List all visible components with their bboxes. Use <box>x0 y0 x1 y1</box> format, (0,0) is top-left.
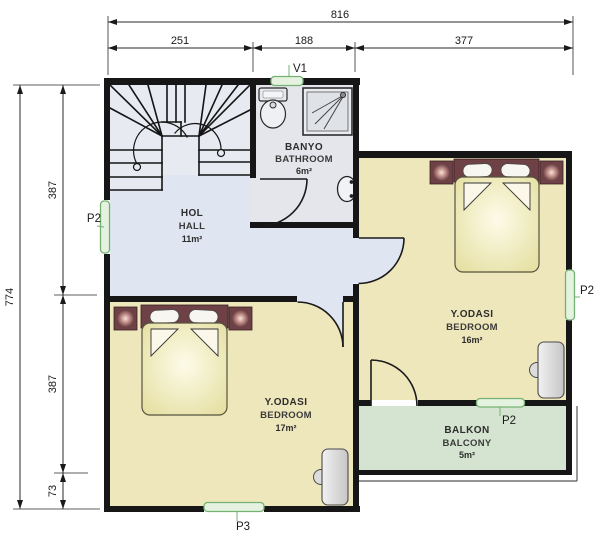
room-bedroom-right-name: Y.ODASI <box>451 309 494 320</box>
room-balcony-name-en: BALCONY <box>442 438 491 449</box>
dim-left-seg3: 73 <box>47 485 59 497</box>
pillow <box>189 309 219 323</box>
room-hall-name: HOL <box>181 208 203 219</box>
lamp <box>232 310 249 327</box>
floors <box>110 85 566 506</box>
dim-left-total: 774 <box>4 288 16 306</box>
pillow <box>150 309 180 323</box>
floor-plan: 816 251 188 377 774 387 387 73 HOL HALL … <box>0 0 600 541</box>
room-balcony-area: 5m² <box>459 450 475 460</box>
label-p2-right: P2 <box>580 285 594 297</box>
room-bathroom-name-en: BATHROOM <box>275 154 333 165</box>
label-p2-balcony: P2 <box>502 415 516 427</box>
window-p3-bottom <box>204 503 264 512</box>
room-bathroom-area: 6m² <box>296 166 312 176</box>
room-bathroom-name: BANYO <box>285 142 323 153</box>
lamp <box>543 164 560 181</box>
label-p3: P3 <box>236 521 250 533</box>
vent-v1 <box>271 77 303 86</box>
room-bedroom-right-area: 16m² <box>461 335 482 345</box>
room-bedroom-left-name: Y.ODASI <box>265 397 308 408</box>
window-p2-right <box>566 270 575 320</box>
dim-left-seg1: 387 <box>47 181 59 199</box>
room-bedroom-right-name-en: BEDROOM <box>446 322 498 333</box>
dim-left-seg2: 387 <box>47 375 59 393</box>
room-hall-name-en: HALL <box>179 221 206 232</box>
dim-top-total: 816 <box>331 9 349 21</box>
lamp <box>117 310 134 327</box>
dim-top-seg1: 251 <box>171 35 189 47</box>
pillow <box>463 163 493 177</box>
stair-walkline-start-left <box>134 164 141 171</box>
door-p2-balcony <box>477 399 525 408</box>
dim-top-seg3: 377 <box>455 35 473 47</box>
room-bedroom-left-name-en: BEDROOM <box>260 410 312 421</box>
room-hall-area: 11m² <box>182 234 203 244</box>
lamp <box>433 164 450 181</box>
toilet-icon <box>259 88 287 128</box>
stair-walkline-start-right <box>218 150 225 157</box>
label-v1: V1 <box>293 63 307 75</box>
room-balcony-name: BALKON <box>444 425 489 436</box>
label-p2-left: P2 <box>87 213 101 225</box>
dim-top-seg2: 188 <box>295 35 313 47</box>
pillow <box>501 163 531 177</box>
room-bedroom-left-area: 17m² <box>275 423 296 433</box>
shower-icon <box>303 88 352 135</box>
